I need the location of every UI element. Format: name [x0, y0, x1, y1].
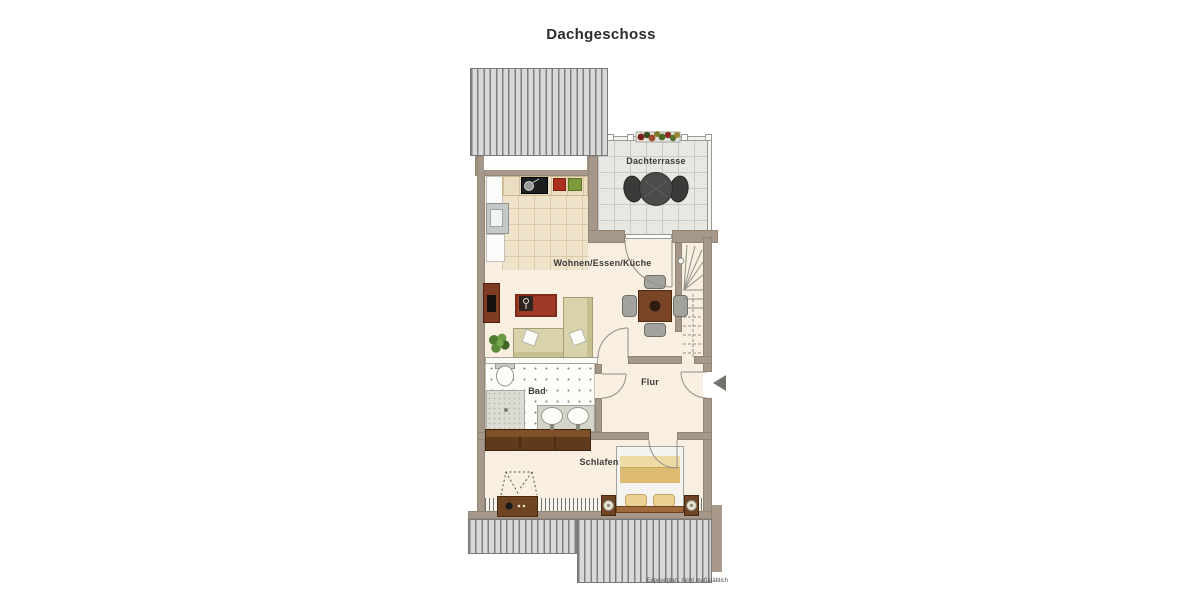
wall-hall-top [628, 356, 682, 364]
dining-table [638, 290, 672, 322]
dining-chair [644, 275, 666, 289]
shower [486, 390, 525, 430]
wall-right-lower [703, 398, 712, 520]
room-label-hall: Flur [620, 377, 680, 387]
coffee-table [519, 296, 533, 311]
terrace-floor [598, 140, 708, 235]
wardrobe [485, 429, 591, 451]
washbasin-counter [537, 405, 595, 432]
terrace-railing [607, 136, 712, 141]
terrace-railing-right [707, 136, 712, 235]
railing-post [705, 134, 712, 141]
footer-note: Exposéplan, nicht maßstäblich [628, 578, 728, 584]
wall-bedroom-top-right [677, 432, 712, 440]
kitchen-cabinet-upper [486, 176, 503, 204]
railing-post [607, 134, 614, 141]
sofa-chaise [563, 297, 593, 358]
kitchen-sink-basin [490, 209, 503, 227]
dining-chair [673, 295, 688, 317]
wall-terrace-bottom-left [588, 230, 625, 243]
nightstand-left [601, 495, 616, 516]
nightstand-right [684, 495, 699, 516]
terrace-glass-door [625, 234, 672, 239]
roof-top [470, 68, 608, 156]
wall-hall-top-right [694, 356, 712, 364]
railing-post [627, 134, 634, 141]
bed-headboard [616, 506, 684, 513]
roof-bottom-right [577, 519, 712, 583]
toilet-tank [495, 363, 515, 369]
cooktop [521, 177, 548, 194]
wall-bath-right-upper [595, 364, 602, 374]
room-label-bedroom: Schlafen [556, 457, 642, 467]
floorplan: Dachgeschoss [0, 0, 1200, 600]
tv [487, 295, 496, 312]
wall-left [477, 156, 485, 520]
wall-stair-left [675, 243, 682, 332]
kitchen-cabinet-lower [486, 234, 505, 262]
room-label-bath: Bad [517, 386, 557, 396]
railing-post [681, 134, 688, 141]
page-title: Dachgeschoss [451, 26, 751, 43]
entrance-arrow-icon [713, 375, 726, 391]
cutting-board [553, 178, 566, 191]
bed-blanket [620, 467, 680, 483]
dining-chair [644, 323, 666, 337]
dresser [497, 496, 538, 517]
dormer-strip [484, 156, 587, 170]
dining-chair [622, 295, 637, 317]
wall-right-upper [703, 237, 712, 372]
wall-bath-right-lower [595, 398, 602, 432]
room-label-living: Wohnen/Essen/Küche [520, 258, 685, 268]
salad-bowl [568, 178, 582, 191]
roof-bottom-left [468, 519, 577, 554]
watermark-strip [712, 505, 722, 572]
room-label-terrace: Dachterrasse [598, 156, 714, 166]
